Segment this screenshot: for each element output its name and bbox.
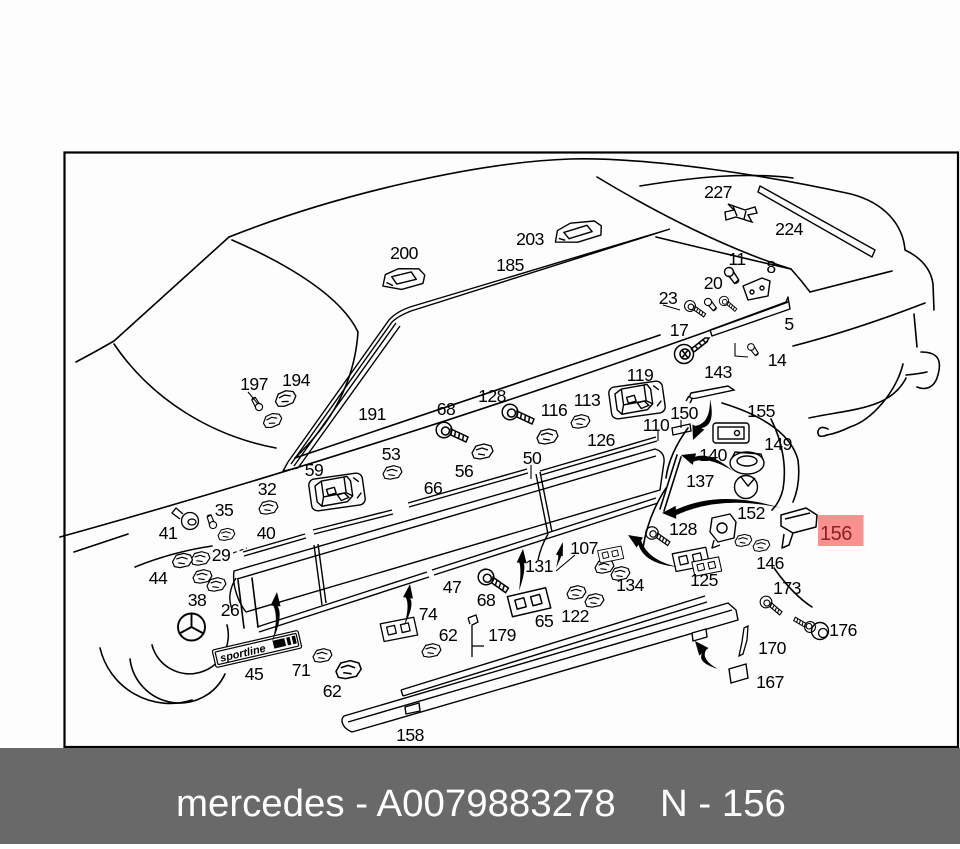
svg-text:194: 194 <box>282 370 311 390</box>
svg-text:8: 8 <box>766 257 776 277</box>
svg-text:44: 44 <box>149 568 168 588</box>
svg-text:35: 35 <box>215 500 234 520</box>
svg-text:227: 227 <box>704 182 732 202</box>
svg-text:155: 155 <box>747 401 776 421</box>
svg-text:119: 119 <box>627 365 654 385</box>
svg-text:N - 156: N - 156 <box>660 782 786 825</box>
svg-text:152: 152 <box>737 503 765 523</box>
svg-text:68: 68 <box>437 399 456 419</box>
svg-text:146: 146 <box>756 553 785 573</box>
svg-text:11: 11 <box>728 249 745 269</box>
svg-text:68: 68 <box>477 590 496 610</box>
svg-text:50: 50 <box>523 448 542 468</box>
svg-text:71: 71 <box>292 660 311 680</box>
svg-text:131: 131 <box>525 556 553 576</box>
svg-text:41: 41 <box>159 523 178 543</box>
svg-text:56: 56 <box>455 461 474 481</box>
svg-text:126: 126 <box>587 430 616 450</box>
svg-text:191: 191 <box>358 404 386 424</box>
svg-text:134: 134 <box>616 575 645 595</box>
svg-text:224: 224 <box>775 219 804 239</box>
svg-text:167: 167 <box>756 672 784 692</box>
svg-text:150: 150 <box>670 403 699 423</box>
svg-text:170: 170 <box>758 638 787 658</box>
svg-text:45: 45 <box>245 664 264 684</box>
svg-text:173: 173 <box>773 578 802 598</box>
svg-text:40: 40 <box>257 523 276 543</box>
svg-text:17: 17 <box>670 320 689 340</box>
svg-text:179: 179 <box>488 625 516 645</box>
svg-text:203: 203 <box>516 229 545 249</box>
svg-text:176: 176 <box>829 620 858 640</box>
svg-text:62: 62 <box>439 625 458 645</box>
svg-text:128: 128 <box>669 519 698 539</box>
svg-text:26: 26 <box>221 600 240 620</box>
svg-text:mercedes - A0079883278: mercedes - A0079883278 <box>176 782 616 825</box>
svg-text:197: 197 <box>240 374 268 394</box>
svg-text:125: 125 <box>690 570 719 590</box>
svg-text:149: 149 <box>764 434 792 454</box>
svg-text:32: 32 <box>258 479 277 499</box>
svg-text:29: 29 <box>212 545 231 565</box>
svg-text:23: 23 <box>659 288 678 308</box>
svg-text:38: 38 <box>188 590 207 610</box>
svg-text:66: 66 <box>424 478 443 498</box>
svg-text:143: 143 <box>704 362 733 382</box>
svg-text:185: 185 <box>496 255 525 275</box>
svg-text:156: 156 <box>820 523 852 545</box>
svg-text:62: 62 <box>323 681 342 701</box>
svg-text:113: 113 <box>574 390 601 410</box>
svg-text:137: 137 <box>686 471 714 491</box>
svg-text:200: 200 <box>390 243 419 263</box>
svg-text:65: 65 <box>535 611 554 631</box>
svg-text:20: 20 <box>704 273 723 293</box>
svg-text:140: 140 <box>699 445 728 465</box>
svg-text:5: 5 <box>784 314 794 334</box>
svg-text:122: 122 <box>561 606 589 626</box>
svg-text:116: 116 <box>541 400 568 420</box>
svg-text:158: 158 <box>396 725 425 745</box>
svg-text:74: 74 <box>419 604 438 624</box>
svg-text:107: 107 <box>570 538 598 558</box>
svg-text:53: 53 <box>382 444 401 464</box>
svg-text:110: 110 <box>643 415 670 435</box>
svg-text:47: 47 <box>443 577 462 597</box>
svg-text:128: 128 <box>478 386 507 406</box>
svg-text:59: 59 <box>305 460 324 480</box>
svg-text:14: 14 <box>768 350 787 370</box>
